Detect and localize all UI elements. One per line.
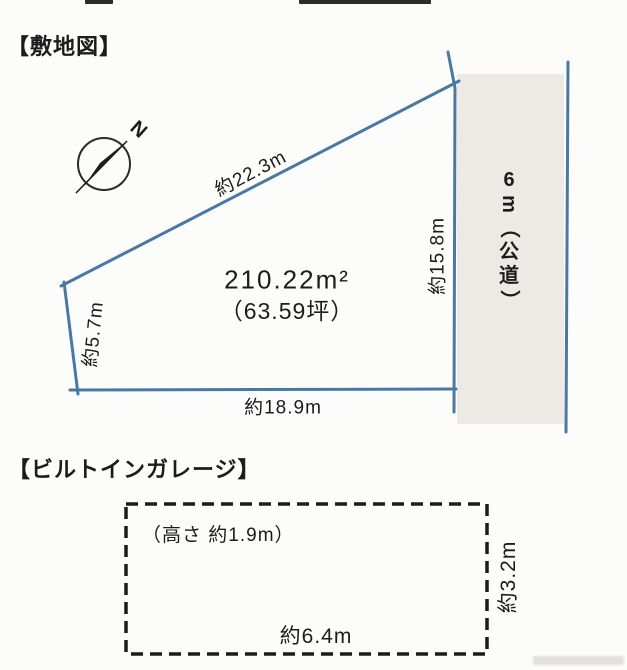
- garage-depth-label: 約3.2m: [492, 541, 522, 614]
- road-label-char: 公: [499, 240, 519, 264]
- dimension-bottom-edge: 約18.9m: [244, 393, 322, 420]
- plot-area-square-meters: 210.22m²: [224, 265, 350, 296]
- compass-icon: [76, 138, 130, 193]
- scan-artifact-top-right: [299, 0, 431, 4]
- road-label-char: 道: [499, 264, 519, 288]
- plot-edge-left: [64, 282, 78, 394]
- garage-section-title: 【ビルトインガレージ】: [8, 452, 261, 484]
- garage-width-label: 約6.4m: [280, 620, 353, 650]
- site-plan-document: 【敷地図】 N 約22.3m 約15.8m 約5.7m 約18.9m 210.2…: [0, 0, 627, 670]
- site-plan-title: 【敷地図】: [7, 29, 122, 61]
- plot-edge-bottom: [70, 389, 456, 390]
- road-label: 6 m （ 公 道 ）: [492, 168, 526, 312]
- road-label-char: 6: [503, 168, 514, 192]
- road-label-char: m: [497, 195, 521, 213]
- plot-area-tsubo: （63.59坪）: [220, 292, 355, 326]
- road-label-char: （: [497, 218, 521, 238]
- scan-artifact-bottom-right: [533, 656, 624, 665]
- road-label-char: ）: [497, 290, 521, 310]
- road-right-line: [566, 62, 568, 432]
- dimension-right-edge: 約15.8m: [423, 217, 450, 295]
- scan-artifact-top-left: [85, 0, 113, 4]
- garage-height-note: （高さ 約1.9m）: [142, 520, 295, 547]
